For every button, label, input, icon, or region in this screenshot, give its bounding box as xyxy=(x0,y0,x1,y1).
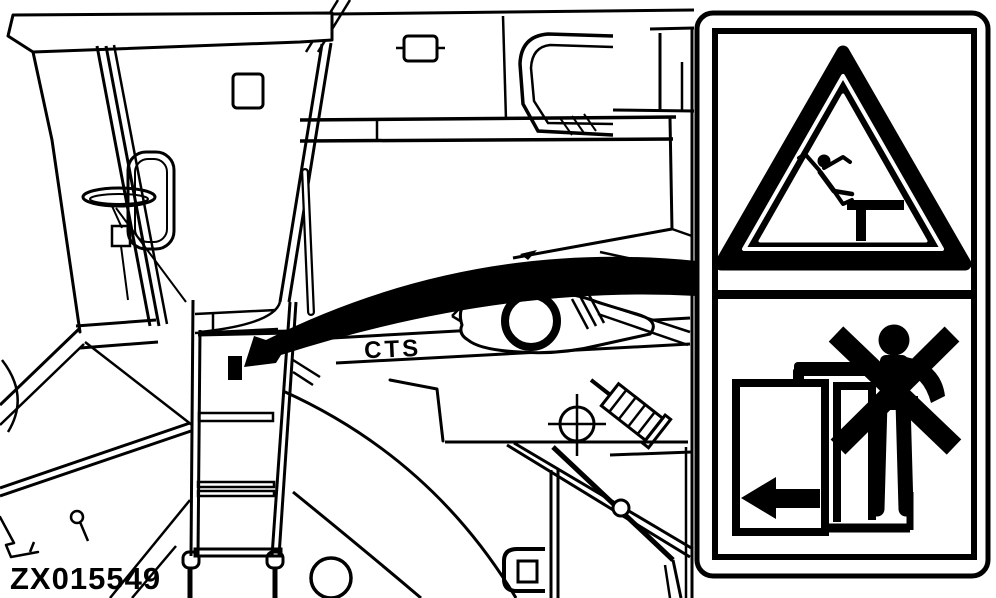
ladder-rung xyxy=(198,482,274,487)
cab-window-sticker xyxy=(233,74,263,108)
machine-model-label: CTS xyxy=(364,335,422,364)
combine-line-art: CTS xyxy=(0,0,694,598)
feeder-lines xyxy=(0,328,192,598)
image-code-label: ZX015549 xyxy=(10,561,161,596)
decal-divider xyxy=(712,290,977,299)
front-wheel xyxy=(283,391,516,598)
platform-post xyxy=(856,210,866,241)
manual-figure: CTS xyxy=(0,0,996,598)
wheel-hub xyxy=(311,558,351,598)
safety-decal-panel xyxy=(697,13,988,576)
roof-hatch xyxy=(404,36,437,61)
header-hook-detail xyxy=(71,511,83,523)
platform-edge xyxy=(847,200,904,210)
decal-location-marker xyxy=(228,356,242,380)
ladder-rung xyxy=(199,413,273,421)
line-art-canvas: CTS xyxy=(0,0,996,598)
axle-bracket xyxy=(504,549,545,591)
hydraulic-cylinder xyxy=(580,366,671,448)
ladder-rung xyxy=(198,491,274,496)
frame-details xyxy=(390,366,693,598)
cab-roof xyxy=(8,13,332,52)
cab xyxy=(8,13,332,348)
crosshair-symbol xyxy=(548,394,606,456)
